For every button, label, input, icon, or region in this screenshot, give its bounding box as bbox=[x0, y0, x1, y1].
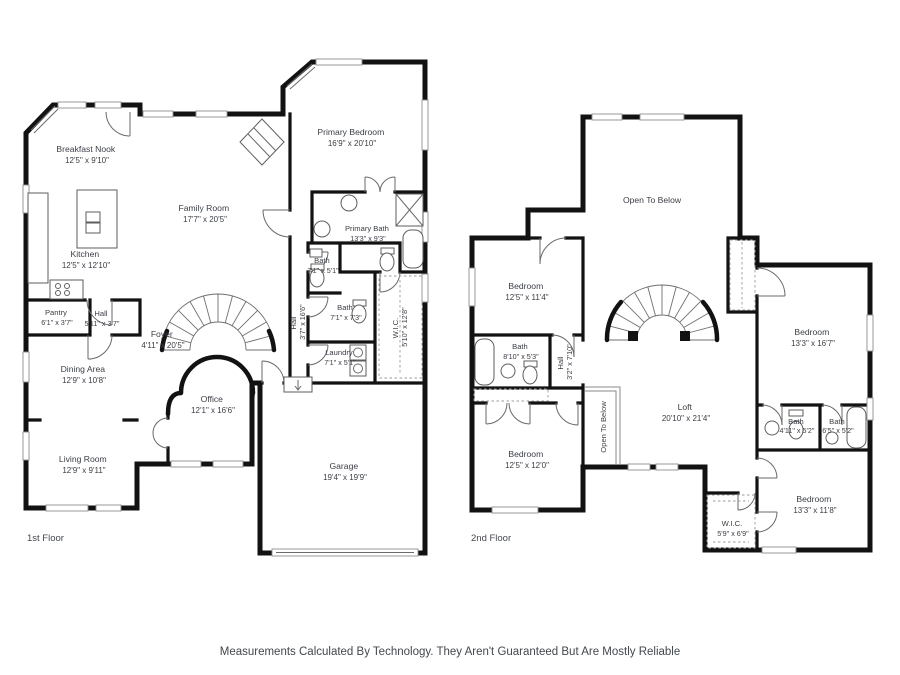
second-floor-label: 2nd Floor bbox=[471, 533, 511, 544]
floorplan-canvas: Breakfast Nook 12'5" x 9'10" Kitchen 12'… bbox=[0, 0, 900, 675]
room-label-primary-bedroom: Primary Bedroom 16'9" x 20'10" bbox=[317, 127, 386, 148]
room-label-hall-2f: Hall 3'2" x 7'10" bbox=[556, 344, 574, 380]
room-label-laundry: Laundry 7'1" x 5'1" bbox=[324, 348, 356, 367]
room-label-pantry: Pantry 6'1" x 3'7" bbox=[41, 308, 73, 327]
room-label-living: Living Room 12'9" x 9'11" bbox=[59, 454, 109, 475]
room-label-loft: Loft 20'10" x 21'4" bbox=[662, 402, 710, 423]
room-label-family-room: Family Room 17'7" x 20'5" bbox=[178, 203, 231, 224]
room-label-garage: Garage 19'4" x 19'9" bbox=[323, 461, 367, 482]
room-label-wic-2f: W.I.C. 5'9" x 6'9" bbox=[717, 519, 749, 538]
fireplace-icon bbox=[240, 119, 284, 165]
first-floor-label: 1st Floor bbox=[27, 533, 64, 544]
room-label-bath-left: Bath 8'10" x 5'3" bbox=[503, 342, 539, 361]
room-label-bedroom-se: Bedroom 13'3" x 11'8" bbox=[793, 494, 836, 515]
room-label-office: Office 12'1" x 16'6" bbox=[191, 394, 235, 415]
f1-doors bbox=[87, 112, 400, 448]
room-label-bath-mid: Bath 4'11" x 5'2" bbox=[780, 417, 815, 435]
second-floor-plan: Open To Below Bedroom 12'5" x 11'4" Bath… bbox=[469, 114, 873, 553]
room-label-open-to-below-rail: Open To Below bbox=[599, 401, 608, 453]
first-floor-plan: Breakfast Nook 12'5" x 9'10" Kitchen 12'… bbox=[23, 59, 428, 556]
f2-staircase bbox=[607, 285, 717, 341]
room-label-bath-small: Bath 7'1" x 5'1" bbox=[307, 256, 339, 275]
room-label-open-to-below: Open To Below bbox=[623, 195, 682, 205]
room-label-bedroom-sw: Bedroom 12'5" x 12'0" bbox=[505, 449, 549, 470]
room-label-bedroom-nw: Bedroom 12'5" x 11'4" bbox=[505, 281, 548, 302]
room-label-bedroom-e: Bedroom 13'3" x 16'7" bbox=[791, 327, 835, 348]
floorplan-page: Breakfast Nook 12'5" x 9'10" Kitchen 12'… bbox=[0, 0, 900, 675]
room-label-primary-bath: Primary Bath 13'3" x 9'3" bbox=[345, 224, 391, 243]
disclaimer-text: Measurements Calculated By Technology. T… bbox=[220, 646, 681, 658]
room-label-wic: W.I.C. 5'10" x 12'8" bbox=[391, 307, 409, 347]
room-label-kitchen: Kitchen 12'5" x 12'10" bbox=[62, 249, 110, 270]
room-label-hall-long: Hall 3'7" x 16'6" bbox=[289, 304, 307, 340]
room-label-breakfast-nook: Breakfast Nook 12'5" x 9'10" bbox=[56, 144, 117, 165]
garage-stoop-icon bbox=[284, 377, 312, 392]
room-label-dining: Dining Area 12'9" x 10'8" bbox=[61, 364, 108, 385]
